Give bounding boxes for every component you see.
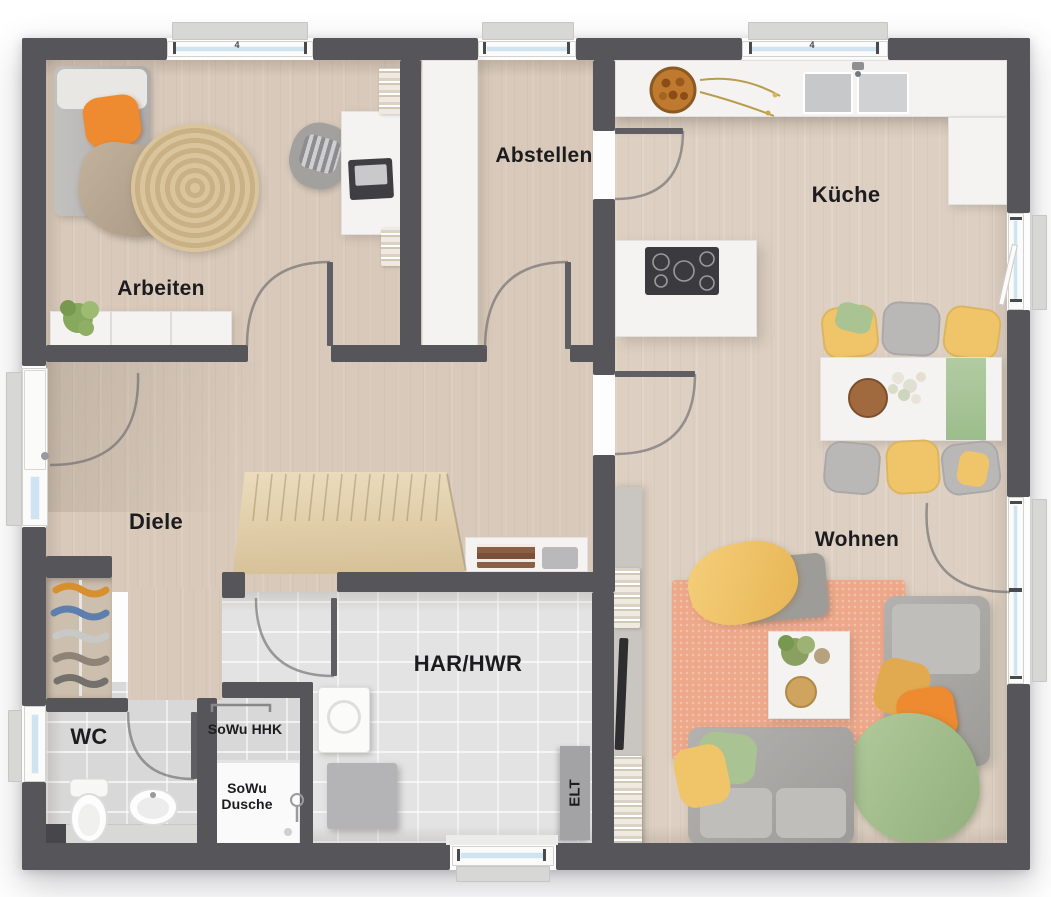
kitchen-sink-left xyxy=(803,72,853,114)
wall-shower-east xyxy=(300,682,313,846)
window-mark: 4 xyxy=(234,40,239,50)
kitchen-sink-right xyxy=(857,72,909,114)
table-runner xyxy=(946,358,986,440)
wall-right xyxy=(1007,310,1030,497)
sideboard-seam xyxy=(170,312,172,346)
wall-abstellen-kueche-top xyxy=(593,60,615,131)
dining-chair xyxy=(941,303,1004,362)
dining-chair xyxy=(822,440,882,497)
dining-chair xyxy=(885,439,942,496)
window-sill xyxy=(748,22,888,40)
room-label-har-hwr: HAR/HWR xyxy=(414,651,522,677)
room-label-wohnen: Wohnen xyxy=(815,528,899,552)
wall-top xyxy=(576,38,742,60)
wall-bottom xyxy=(22,843,450,870)
door-leaf-arbeiten xyxy=(327,262,333,346)
laptop-keyboard xyxy=(354,164,387,186)
wardrobe-niche-top xyxy=(46,556,112,578)
window-glass xyxy=(460,852,546,859)
round-jute-rug xyxy=(131,124,259,252)
wardrobe-pole xyxy=(79,580,82,696)
washer-door xyxy=(327,700,361,734)
shelf-books xyxy=(477,544,535,568)
room-label-arbeiten: Arbeiten xyxy=(117,277,205,301)
annotation-elt: ELT xyxy=(567,779,584,807)
window-sill xyxy=(482,22,574,40)
terrace-glass xyxy=(1013,505,1018,676)
wall-stairs-stub xyxy=(222,572,245,598)
entry-door xyxy=(24,370,46,470)
floor-plan: Arbeiten Abstellen Küche Diele Wohnen HA… xyxy=(0,0,1051,897)
window-glass xyxy=(31,714,39,774)
window-sill xyxy=(456,866,550,882)
wall-wc-top xyxy=(46,698,128,712)
room-label-wc: WC xyxy=(70,724,107,750)
lowboard-books xyxy=(614,568,640,628)
room-label-diele: Diele xyxy=(129,509,183,535)
kitchen-counter-corner xyxy=(948,117,1007,205)
cooktop xyxy=(645,247,719,295)
staircase xyxy=(228,472,468,574)
wall-abstellen-kueche-bottom xyxy=(593,199,615,375)
annotation-sowu-dusche-1: SoWu xyxy=(227,780,267,796)
wall-arbeiten-abstellen xyxy=(400,60,421,352)
annotation-sowu-dusche-2: Dusche xyxy=(221,796,272,812)
sideboard-seam xyxy=(110,312,112,346)
wall-bottom xyxy=(556,843,1030,870)
wall-top xyxy=(313,38,478,60)
wall-har-top xyxy=(337,572,615,592)
wall-abstellen-bottom xyxy=(331,345,487,362)
annotation-sowu-hhk: SoWu HHK xyxy=(208,721,282,737)
door-leaf-abstellen-kueche xyxy=(615,128,683,134)
sofa-seat xyxy=(776,788,846,838)
wall-right xyxy=(1007,38,1030,213)
dryer xyxy=(327,763,397,829)
shelf-decor xyxy=(542,547,578,569)
door-leaf-wc xyxy=(191,712,197,779)
lowboard-books xyxy=(614,756,642,848)
entry-sidelight-glass xyxy=(30,476,40,520)
storage-cabinet xyxy=(422,60,478,346)
dining-chair xyxy=(881,301,942,358)
wall-left xyxy=(22,527,46,706)
door-leaf-kueche xyxy=(615,371,695,377)
window-glass xyxy=(486,46,568,52)
terrace-sill xyxy=(1032,215,1047,310)
window-glass xyxy=(175,46,305,52)
room-label-kueche: Küche xyxy=(812,182,881,208)
window-mark: 4 xyxy=(809,40,814,50)
terrace-sill xyxy=(1032,499,1047,682)
wall-arbeiten-bottom xyxy=(46,345,248,362)
wall-har-wohnen xyxy=(592,592,614,848)
door-leaf-har xyxy=(331,598,337,676)
window-sill xyxy=(8,710,22,782)
wall-left xyxy=(22,38,46,366)
sideboard xyxy=(50,311,232,347)
window-board xyxy=(446,835,558,845)
decor-tray xyxy=(785,676,817,708)
entry-sill xyxy=(6,372,22,526)
room-label-abstellen: Abstellen xyxy=(495,144,592,168)
window-sill xyxy=(172,22,308,40)
floor-wc-corridor xyxy=(128,588,222,700)
window-glass xyxy=(750,46,880,52)
door-leaf-abstellen xyxy=(565,262,571,349)
